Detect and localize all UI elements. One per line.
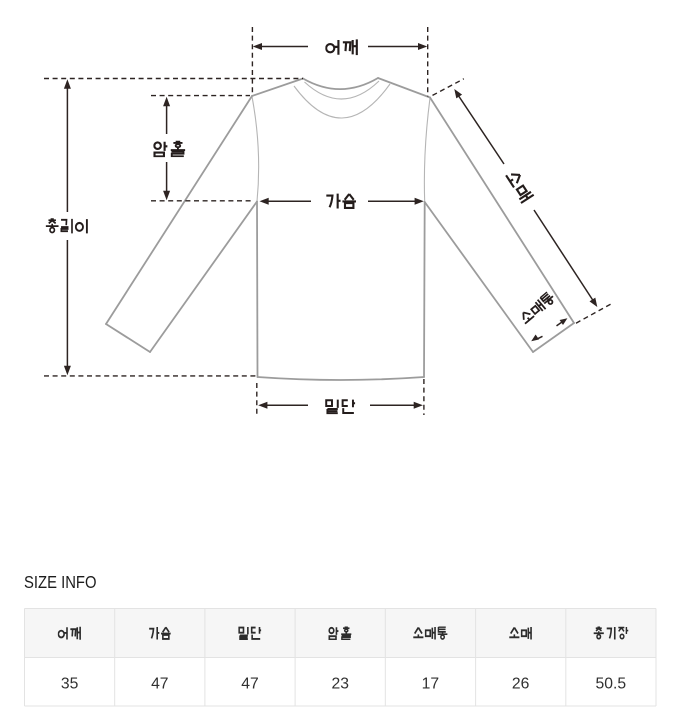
svg-text:SIZE INFO: SIZE INFO (24, 572, 97, 592)
svg-text:35: 35 (61, 676, 79, 693)
svg-text:50.5: 50.5 (596, 676, 627, 693)
svg-text:47: 47 (151, 676, 168, 693)
svg-text:23: 23 (331, 676, 349, 693)
svg-text:17: 17 (422, 676, 439, 693)
svg-text:26: 26 (512, 676, 530, 693)
svg-text:47: 47 (241, 676, 258, 693)
